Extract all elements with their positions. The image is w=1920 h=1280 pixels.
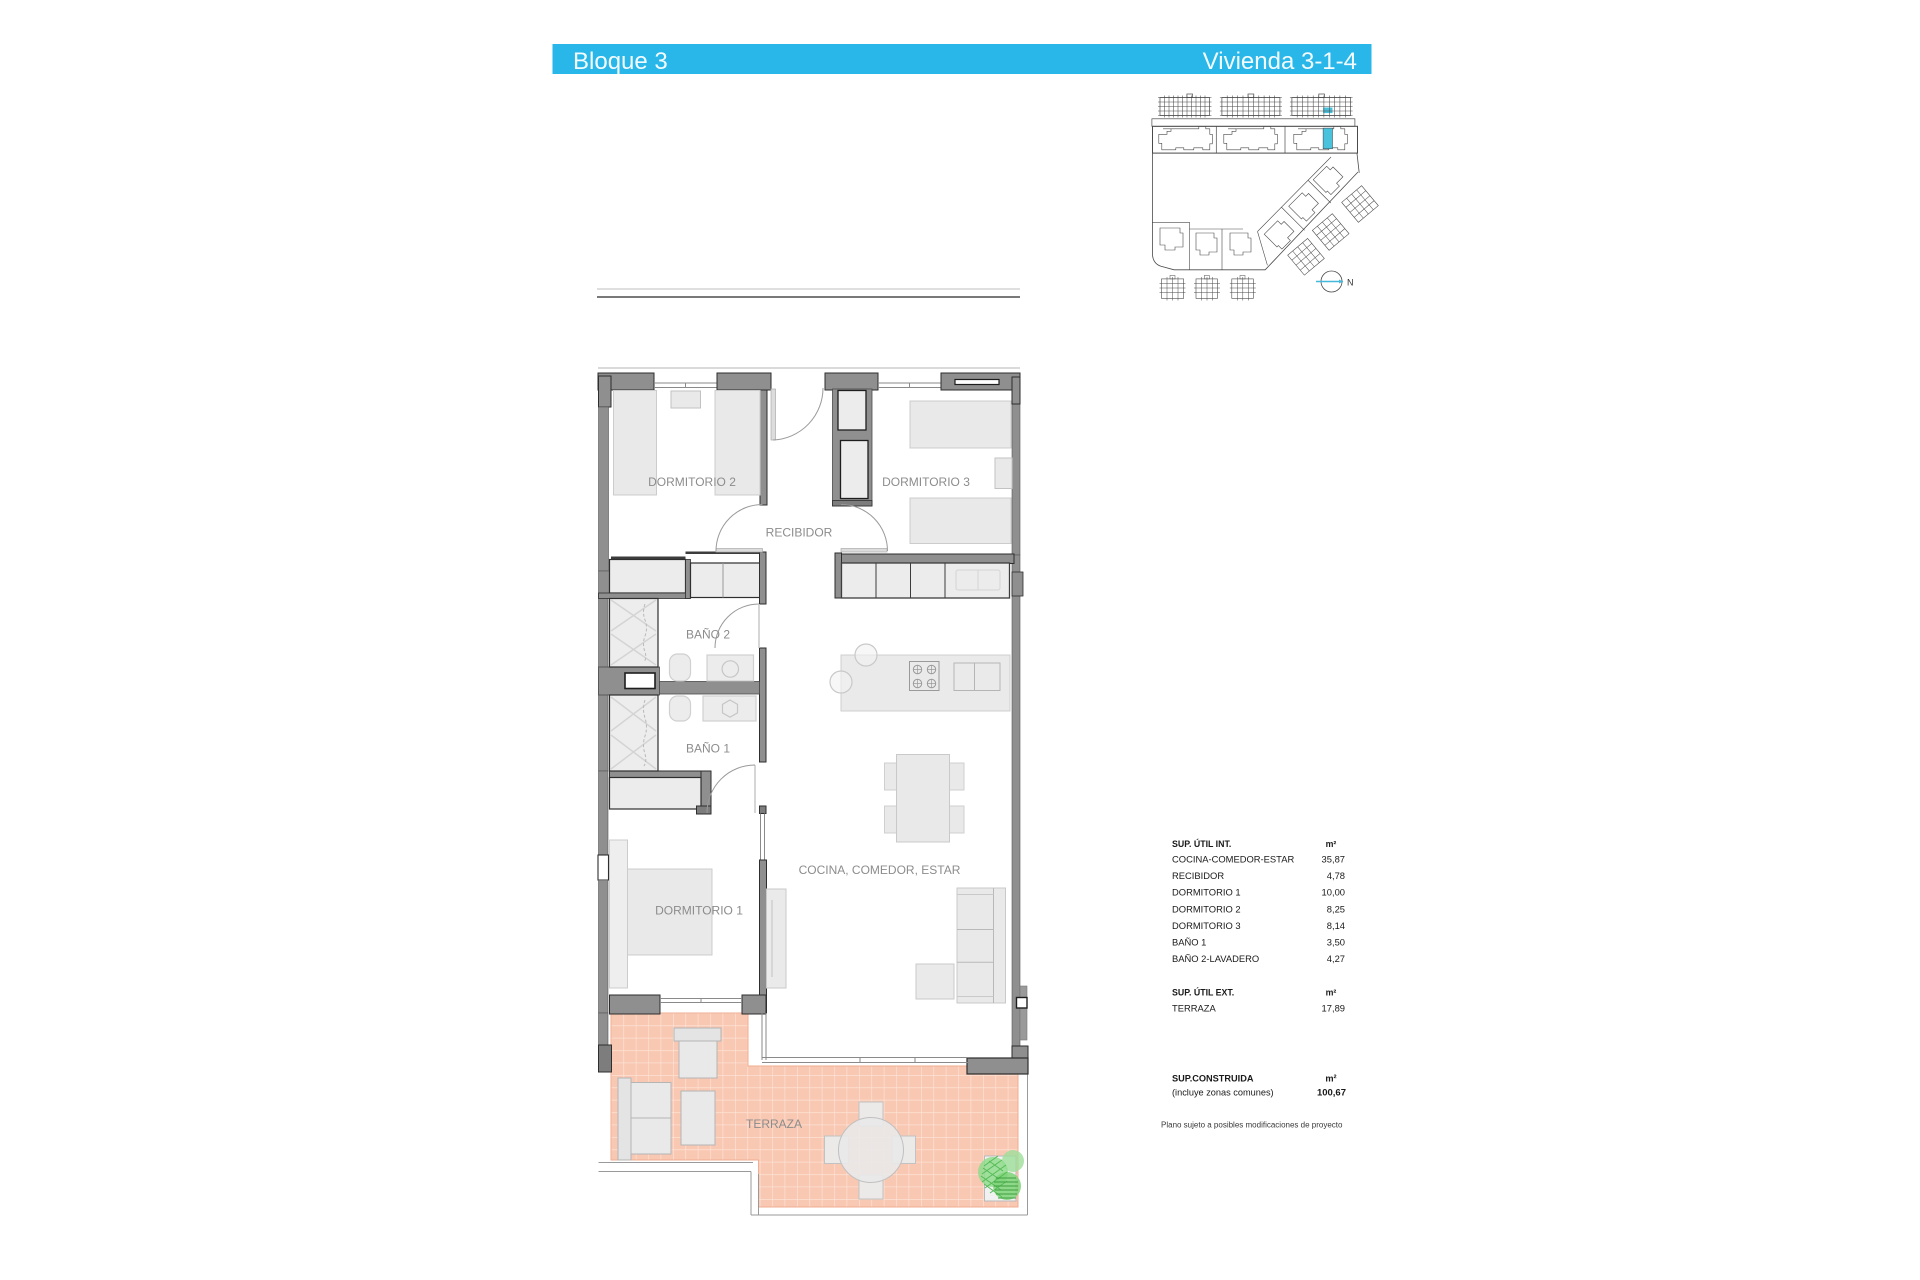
svg-text:DORMITORIO 3: DORMITORIO 3	[1172, 920, 1241, 931]
svg-text:(incluye zonas comunes): (incluye zonas comunes)	[1172, 1088, 1274, 1098]
svg-text:4,27: 4,27	[1327, 953, 1345, 964]
svg-text:m²: m²	[1326, 988, 1337, 998]
svg-text:3,50: 3,50	[1327, 937, 1345, 948]
svg-text:8,14: 8,14	[1327, 920, 1345, 931]
svg-text:N: N	[1347, 278, 1354, 288]
svg-text:DORMITORIO 1: DORMITORIO 1	[1172, 887, 1241, 898]
svg-text:TERRAZA: TERRAZA	[746, 1117, 802, 1131]
svg-text:RECIBIDOR: RECIBIDOR	[1172, 870, 1224, 881]
svg-text:Bloque 3: Bloque 3	[573, 48, 668, 75]
svg-text:COCINA, COMEDOR, ESTAR: COCINA, COMEDOR, ESTAR	[799, 863, 961, 877]
svg-text:m²: m²	[1326, 839, 1337, 849]
svg-text:BAÑO 1: BAÑO 1	[686, 742, 730, 756]
svg-text:SUP.CONSTRUIDA: SUP.CONSTRUIDA	[1172, 1074, 1254, 1084]
svg-text:DORMITORIO 2: DORMITORIO 2	[648, 475, 736, 489]
svg-text:BAÑO 1: BAÑO 1	[1172, 937, 1206, 948]
svg-text:35,87: 35,87	[1322, 854, 1345, 865]
svg-text:SUP. ÚTIL EXT.: SUP. ÚTIL EXT.	[1172, 987, 1234, 998]
svg-text:BAÑO 2-LAVADERO: BAÑO 2-LAVADERO	[1172, 953, 1259, 964]
svg-text:8,25: 8,25	[1327, 903, 1345, 914]
svg-text:DORMITORIO 1: DORMITORIO 1	[655, 904, 743, 918]
svg-text:DORMITORIO 2: DORMITORIO 2	[1172, 903, 1241, 914]
svg-text:SUP. ÚTIL INT.: SUP. ÚTIL INT.	[1172, 838, 1231, 849]
svg-text:TERRAZA: TERRAZA	[1172, 1003, 1217, 1014]
svg-text:BAÑO 2: BAÑO 2	[686, 628, 730, 642]
svg-text:17,89: 17,89	[1322, 1003, 1345, 1014]
svg-text:DORMITORIO 3: DORMITORIO 3	[882, 475, 970, 489]
svg-text:10,00: 10,00	[1322, 887, 1345, 898]
svg-text:100,67: 100,67	[1317, 1088, 1346, 1099]
svg-text:Plano sujeto a posibles modifi: Plano sujeto a posibles modificaciones d…	[1161, 1121, 1343, 1130]
svg-text:Vivienda 3-1-4: Vivienda 3-1-4	[1203, 48, 1357, 75]
svg-text:4,78: 4,78	[1327, 870, 1345, 881]
svg-text:m²: m²	[1325, 1074, 1336, 1084]
svg-text:RECIBIDOR: RECIBIDOR	[766, 526, 833, 540]
svg-text:COCINA-COMEDOR-ESTAR: COCINA-COMEDOR-ESTAR	[1172, 854, 1294, 865]
